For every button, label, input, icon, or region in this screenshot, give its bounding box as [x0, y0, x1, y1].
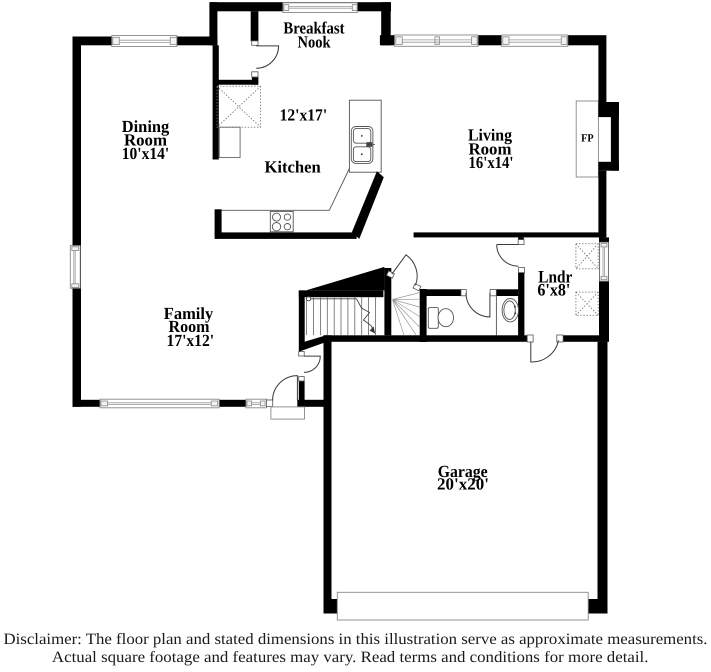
svg-text:20'x20': 20'x20'	[437, 474, 489, 493]
svg-text:Nook: Nook	[298, 32, 331, 51]
svg-text:12'x17': 12'x17'	[280, 105, 328, 124]
svg-text:Disclaimer: The floor plan and: Disclaimer: The floor plan and stated di…	[4, 631, 708, 648]
svg-text:Kitchen: Kitchen	[264, 157, 321, 176]
svg-text:FP: FP	[581, 132, 594, 144]
svg-text:6'x8': 6'x8'	[537, 280, 570, 300]
svg-text:16'x14': 16'x14'	[469, 153, 514, 172]
svg-text:17'x12': 17'x12'	[167, 331, 215, 350]
svg-text:10'x14': 10'x14'	[122, 144, 170, 163]
svg-text:Actual square footage and feat: Actual square footage and features may v…	[52, 649, 649, 666]
